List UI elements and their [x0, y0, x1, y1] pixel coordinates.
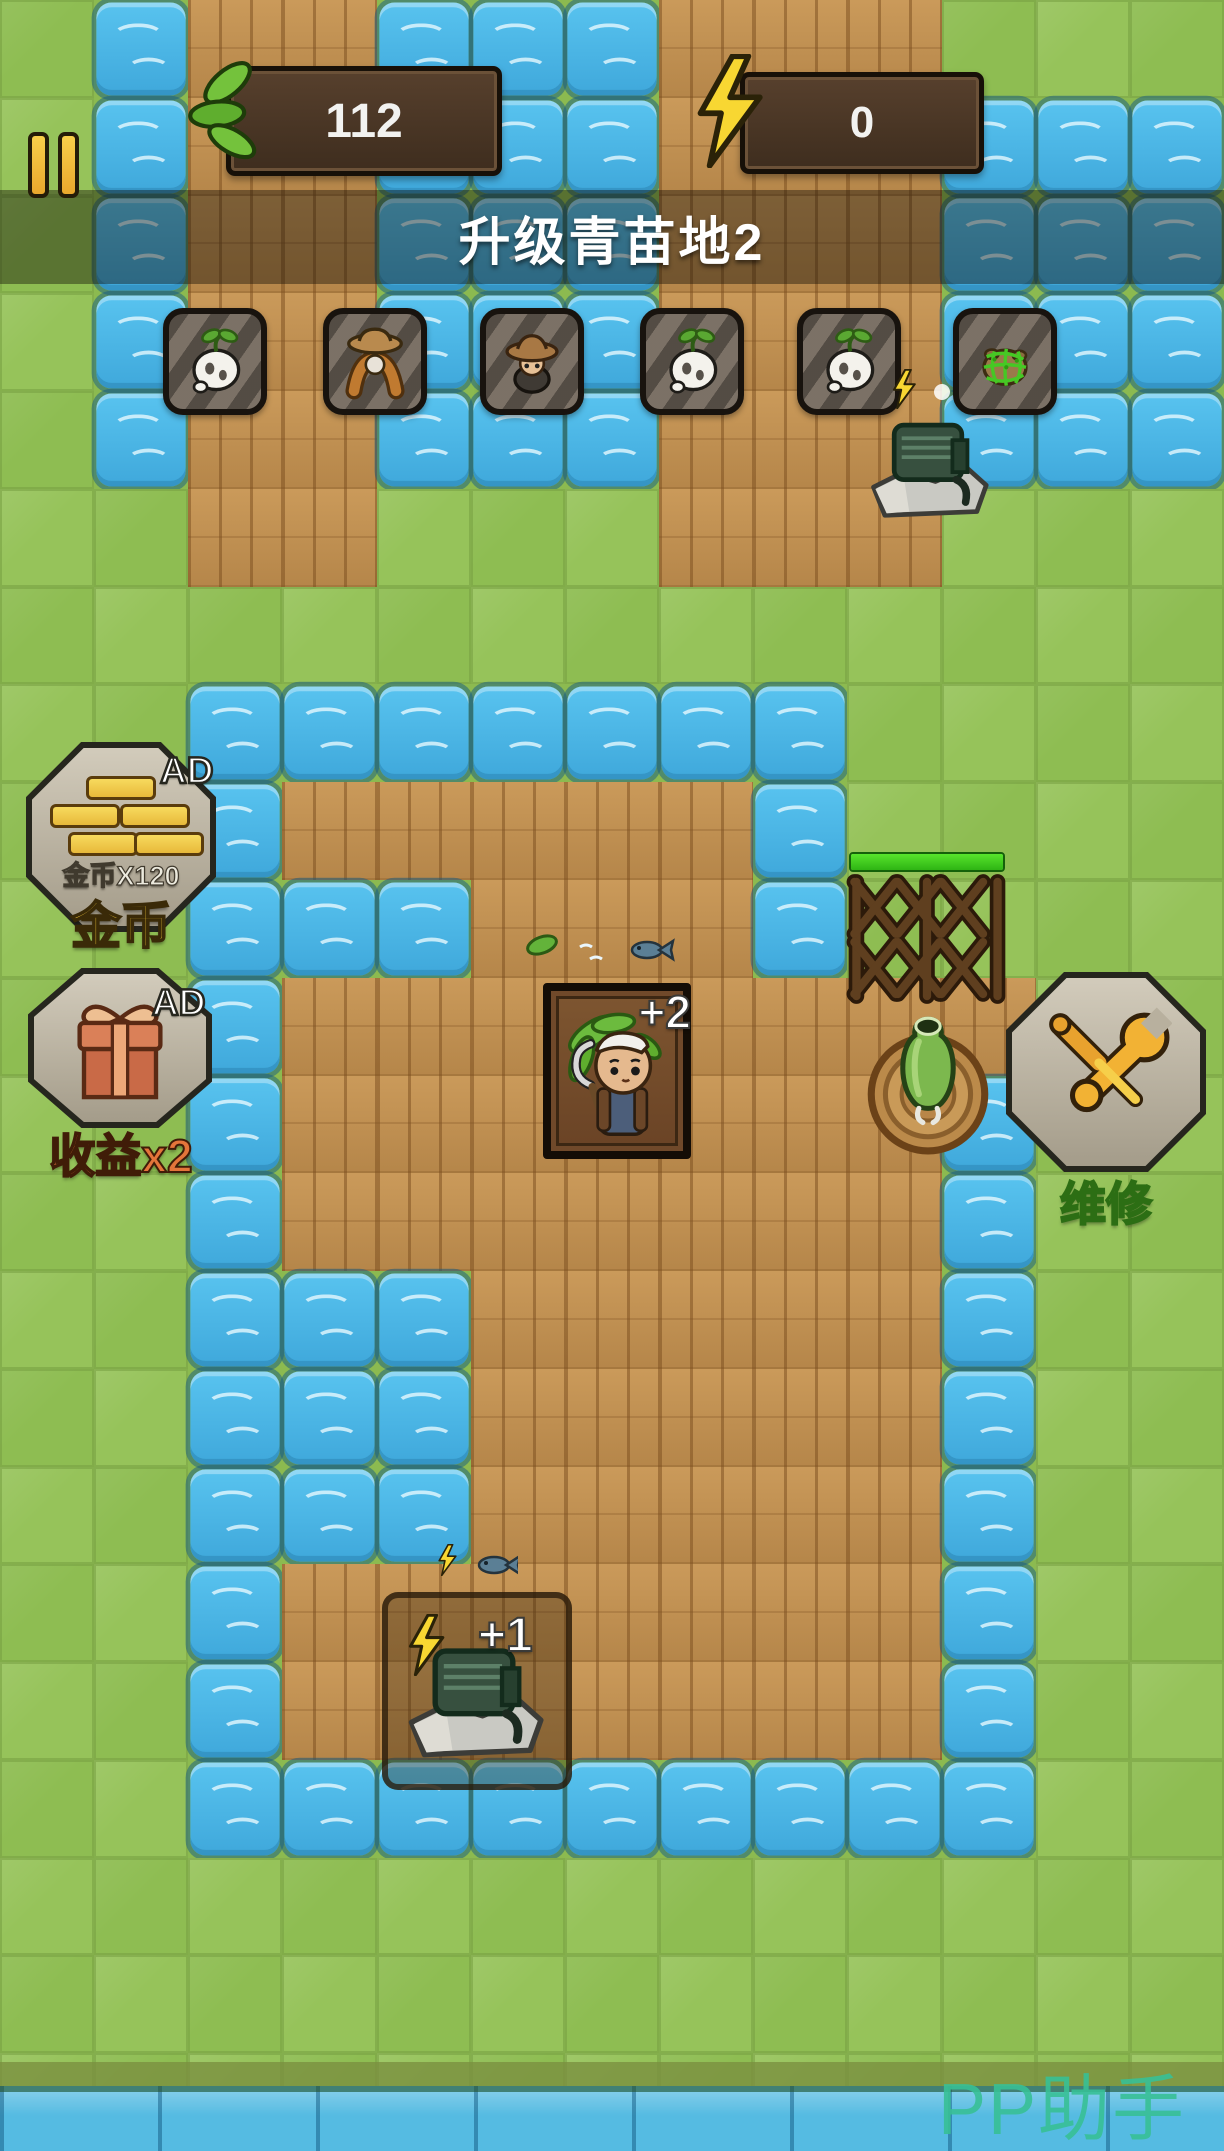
tile-grass — [1130, 880, 1224, 978]
tile-grass — [753, 1955, 847, 2053]
tile-grass — [0, 1369, 94, 1467]
pause-icon — [58, 132, 79, 198]
tile-plank[interactable] — [377, 1173, 471, 1271]
turnip-icon — [650, 320, 734, 404]
tile-plank[interactable] — [471, 1271, 565, 1369]
tile-plank[interactable] — [282, 1173, 377, 1271]
tile-grass — [1130, 684, 1224, 782]
lightning-icon — [688, 54, 770, 168]
tile-water — [944, 1273, 1033, 1366]
tile-water — [755, 1762, 844, 1855]
tile-grass — [659, 1955, 753, 2053]
tile-water — [190, 1566, 279, 1659]
tile-water — [190, 1469, 279, 1561]
tile-water — [284, 1762, 374, 1855]
tile-grass — [1130, 1467, 1224, 1564]
tile-grass — [188, 1955, 282, 2053]
tile-water — [755, 686, 844, 779]
tile-water — [379, 686, 468, 779]
tile-grass — [1130, 1760, 1224, 1858]
tile-plank[interactable] — [471, 1369, 565, 1467]
game-scene: 112 0 升级青苗地2 — [0, 0, 1224, 2151]
tile-grass — [1130, 489, 1224, 587]
tile-grass — [847, 1858, 942, 1955]
tile-plank[interactable] — [565, 1662, 659, 1760]
toolbar-slot-1[interactable] — [163, 308, 267, 415]
toolbar-slot-3[interactable] — [480, 308, 584, 415]
tile-water — [849, 1762, 939, 1855]
tile-plank[interactable] — [282, 489, 377, 587]
coins-button-label: 金币 — [26, 886, 216, 958]
tile-water — [567, 393, 656, 486]
tile-plank[interactable] — [377, 978, 471, 1076]
toolbar-slot-4[interactable] — [640, 308, 744, 415]
tile-water — [755, 784, 844, 877]
bottle-sprout[interactable] — [852, 1005, 1004, 1157]
tile-water — [190, 1175, 279, 1268]
tile-grass — [471, 489, 565, 587]
tile-water — [379, 1273, 468, 1366]
watermark: PP助手 — [938, 2050, 1186, 2151]
floating-bolt-and-fish — [428, 1540, 518, 1586]
tile-plank[interactable] — [565, 1271, 659, 1369]
generator-bonus: +1 — [478, 1608, 533, 1663]
tile-grass — [1036, 489, 1130, 587]
tile-water — [567, 686, 656, 779]
tile-water — [284, 686, 374, 779]
tile-plank[interactable] — [565, 1564, 659, 1662]
tile-grass — [1036, 782, 1130, 880]
tile-grass — [94, 1662, 188, 1760]
tile-grass — [188, 587, 282, 684]
tile-water — [190, 1664, 279, 1757]
toolbar-slot-6[interactable] — [953, 308, 1057, 415]
tile-grass — [471, 587, 565, 684]
tile-grass — [1036, 684, 1130, 782]
farmer-portrait[interactable]: +2 — [543, 983, 691, 1159]
tile-grass — [1130, 1662, 1224, 1760]
tile-grass — [0, 489, 94, 587]
tile-plank[interactable] — [282, 1076, 377, 1173]
tile-water — [379, 1371, 468, 1464]
tile-grass — [0, 0, 94, 98]
tile-grass — [1036, 1662, 1130, 1760]
ad-badge: AD — [160, 750, 213, 792]
tile-grass — [1130, 1271, 1224, 1369]
tile-water — [190, 1273, 279, 1366]
tile-plank[interactable] — [847, 1662, 942, 1760]
tile-grass — [0, 1271, 94, 1369]
tile-grass — [94, 1271, 188, 1369]
energy-resource-bar: 0 — [740, 72, 984, 174]
tile-grass — [1130, 1858, 1224, 1955]
tile-plank[interactable] — [471, 1173, 565, 1271]
tile-plank[interactable] — [377, 1076, 471, 1173]
tile-grass — [377, 587, 471, 684]
tile-plank[interactable] — [847, 1369, 942, 1467]
tile-plank[interactable] — [847, 1467, 942, 1564]
generator-machine[interactable] — [862, 412, 994, 520]
tile-plank[interactable] — [753, 1662, 847, 1760]
tile-grass — [1036, 1271, 1130, 1369]
tile-grass — [1036, 1564, 1130, 1662]
tile-water — [755, 882, 844, 975]
tile-grass — [94, 1467, 188, 1564]
scarecrow-icon — [333, 320, 417, 404]
fence-health-fill — [851, 854, 1003, 870]
tile-grass — [188, 1858, 282, 1955]
tile-grass — [94, 1858, 188, 1955]
tile-grass — [0, 1955, 94, 2053]
tile-grass — [94, 1564, 188, 1662]
tile-grass — [94, 587, 188, 684]
tile-grass — [377, 1955, 471, 2053]
tile-plank[interactable] — [753, 1173, 847, 1271]
quest-title: 升级青苗地2 — [459, 200, 766, 275]
tile-water — [1132, 393, 1221, 486]
tile-grass — [847, 587, 942, 684]
tile-water — [379, 882, 468, 975]
leaf-count: 112 — [325, 94, 402, 149]
tile-plank[interactable] — [753, 1076, 847, 1173]
tile-grass — [0, 1760, 94, 1858]
pause-button[interactable] — [28, 132, 92, 198]
tile-grass — [1036, 1858, 1130, 1955]
tile-grass — [753, 1858, 847, 1955]
tile-plank[interactable] — [847, 1271, 942, 1369]
tile-plank[interactable] — [659, 489, 753, 587]
tile-water — [284, 1273, 374, 1366]
tile-plank[interactable] — [847, 1564, 942, 1662]
tile-grass — [659, 587, 753, 684]
tile-water — [944, 1371, 1033, 1464]
tile-water — [944, 1469, 1033, 1561]
tile-plank[interactable] — [753, 1369, 847, 1467]
tile-grass — [377, 1858, 471, 1955]
tile-plank[interactable] — [753, 1564, 847, 1662]
tile-grass — [94, 1173, 188, 1271]
tile-grass — [471, 1955, 565, 2053]
tile-plank[interactable] — [282, 978, 377, 1076]
tile-plank[interactable] — [659, 1564, 753, 1662]
tile-grass — [1036, 0, 1130, 98]
tile-grass — [565, 1955, 659, 2053]
toolbar-slot-2[interactable] — [323, 308, 427, 415]
small-lightning-icon — [890, 368, 918, 410]
fence-barricade[interactable] — [844, 852, 1010, 1008]
tile-plank[interactable] — [377, 782, 471, 880]
tile-water — [284, 1469, 374, 1561]
netted-creature-icon — [963, 320, 1047, 404]
tile-grass — [0, 1564, 94, 1662]
pause-icon — [28, 132, 49, 198]
tile-grass — [565, 587, 659, 684]
tile-grass — [1130, 1564, 1224, 1662]
tile-plank[interactable] — [659, 1271, 753, 1369]
tile-water — [284, 1371, 374, 1464]
tile-water — [1132, 295, 1221, 388]
tile-water — [1132, 100, 1221, 193]
tools-icon — [1040, 1004, 1172, 1136]
tile-water — [190, 1762, 279, 1855]
tile-water — [944, 1762, 1033, 1855]
tile-water — [473, 686, 562, 779]
tile-plank[interactable] — [753, 1271, 847, 1369]
tile-grass — [0, 1858, 94, 1955]
tile-water — [567, 2, 656, 95]
tile-plank[interactable] — [659, 1173, 753, 1271]
tile-grass — [471, 1858, 565, 1955]
tile-grass — [753, 587, 847, 684]
tile-plank[interactable] — [659, 1662, 753, 1760]
tile-grass — [942, 684, 1036, 782]
quest-banner: 升级青苗地2 — [0, 190, 1224, 284]
tile-grass — [1130, 587, 1224, 684]
tile-grass — [94, 1760, 188, 1858]
tile-plank[interactable] — [471, 782, 565, 880]
tile-water — [284, 882, 374, 975]
repair-button-label: 维修 — [1008, 1168, 1204, 1234]
tile-plank[interactable] — [565, 1467, 659, 1564]
tile-grass — [94, 1955, 188, 2053]
tile-grass — [1130, 1369, 1224, 1467]
tile-grass — [1036, 1760, 1130, 1858]
tile-grass — [282, 587, 377, 684]
tile-water — [1038, 100, 1127, 193]
tile-grass — [565, 489, 659, 587]
tile-grass — [847, 684, 942, 782]
tile-grass — [0, 587, 94, 684]
tile-plank[interactable] — [282, 1662, 377, 1760]
income-button-label: 收益x2 — [16, 1120, 226, 1186]
tile-water — [944, 1566, 1033, 1659]
tile-grass — [1036, 1955, 1130, 2053]
energy-count: 0 — [850, 98, 874, 148]
lightning-icon — [404, 1614, 448, 1676]
tile-grass — [0, 1467, 94, 1564]
tile-plank[interactable] — [753, 978, 847, 1076]
tile-water — [96, 2, 185, 95]
tile-grass — [659, 1858, 753, 1955]
turnip-icon — [173, 320, 257, 404]
tile-water — [944, 1664, 1033, 1757]
tile-grass — [1036, 1369, 1130, 1467]
repair-button[interactable] — [1006, 972, 1206, 1172]
ad-badge: AD — [152, 982, 205, 1024]
tile-water — [661, 686, 750, 779]
tile-plank[interactable] — [282, 1564, 377, 1662]
tile-grass — [282, 1955, 377, 2053]
tile-grass — [847, 1955, 942, 2053]
tile-plank[interactable] — [659, 782, 753, 880]
tile-plank[interactable] — [565, 1369, 659, 1467]
tile-grass — [1036, 587, 1130, 684]
spark-dot — [934, 384, 950, 400]
tile-plank[interactable] — [753, 1467, 847, 1564]
tile-plank[interactable] — [565, 1173, 659, 1271]
tile-grass — [942, 1955, 1036, 2053]
tile-grass — [1036, 1467, 1130, 1564]
tile-water — [661, 1762, 750, 1855]
tile-water — [567, 100, 656, 193]
tile-grass — [0, 1173, 94, 1271]
fence-icon — [844, 872, 1010, 1006]
tile-grass — [0, 293, 94, 391]
tile-grass — [0, 1662, 94, 1760]
tile-grass — [1130, 1955, 1224, 2053]
turnip-icon — [807, 320, 891, 404]
tile-grass — [377, 489, 471, 587]
tile-grass — [0, 391, 94, 489]
tile-plank[interactable] — [659, 1369, 753, 1467]
tile-plank[interactable] — [188, 489, 282, 587]
portrait-bonus: +2 — [639, 985, 691, 1039]
toolbar-slot-5[interactable] — [797, 308, 901, 415]
tile-plank[interactable] — [282, 782, 377, 880]
tile-water — [567, 1762, 656, 1855]
tile-plank[interactable] — [753, 489, 847, 587]
tile-water — [96, 100, 185, 193]
tile-plank[interactable] — [847, 1173, 942, 1271]
tile-grass — [1130, 782, 1224, 880]
farmer-icon — [490, 320, 574, 404]
tile-grass — [94, 489, 188, 587]
tile-plank[interactable] — [659, 1467, 753, 1564]
tile-grass — [942, 587, 1036, 684]
tile-plank[interactable] — [565, 782, 659, 880]
tile-grass — [94, 1369, 188, 1467]
leaf-icon — [186, 52, 290, 170]
tile-water — [190, 1371, 279, 1464]
floating-leaf-and-fish — [520, 925, 680, 977]
tile-grass — [1036, 880, 1130, 978]
tile-grass — [565, 1858, 659, 1955]
tile-grass — [942, 1858, 1036, 1955]
tile-grass — [1130, 0, 1224, 98]
tile-grass — [282, 1858, 377, 1955]
fence-health-bar — [849, 852, 1005, 872]
